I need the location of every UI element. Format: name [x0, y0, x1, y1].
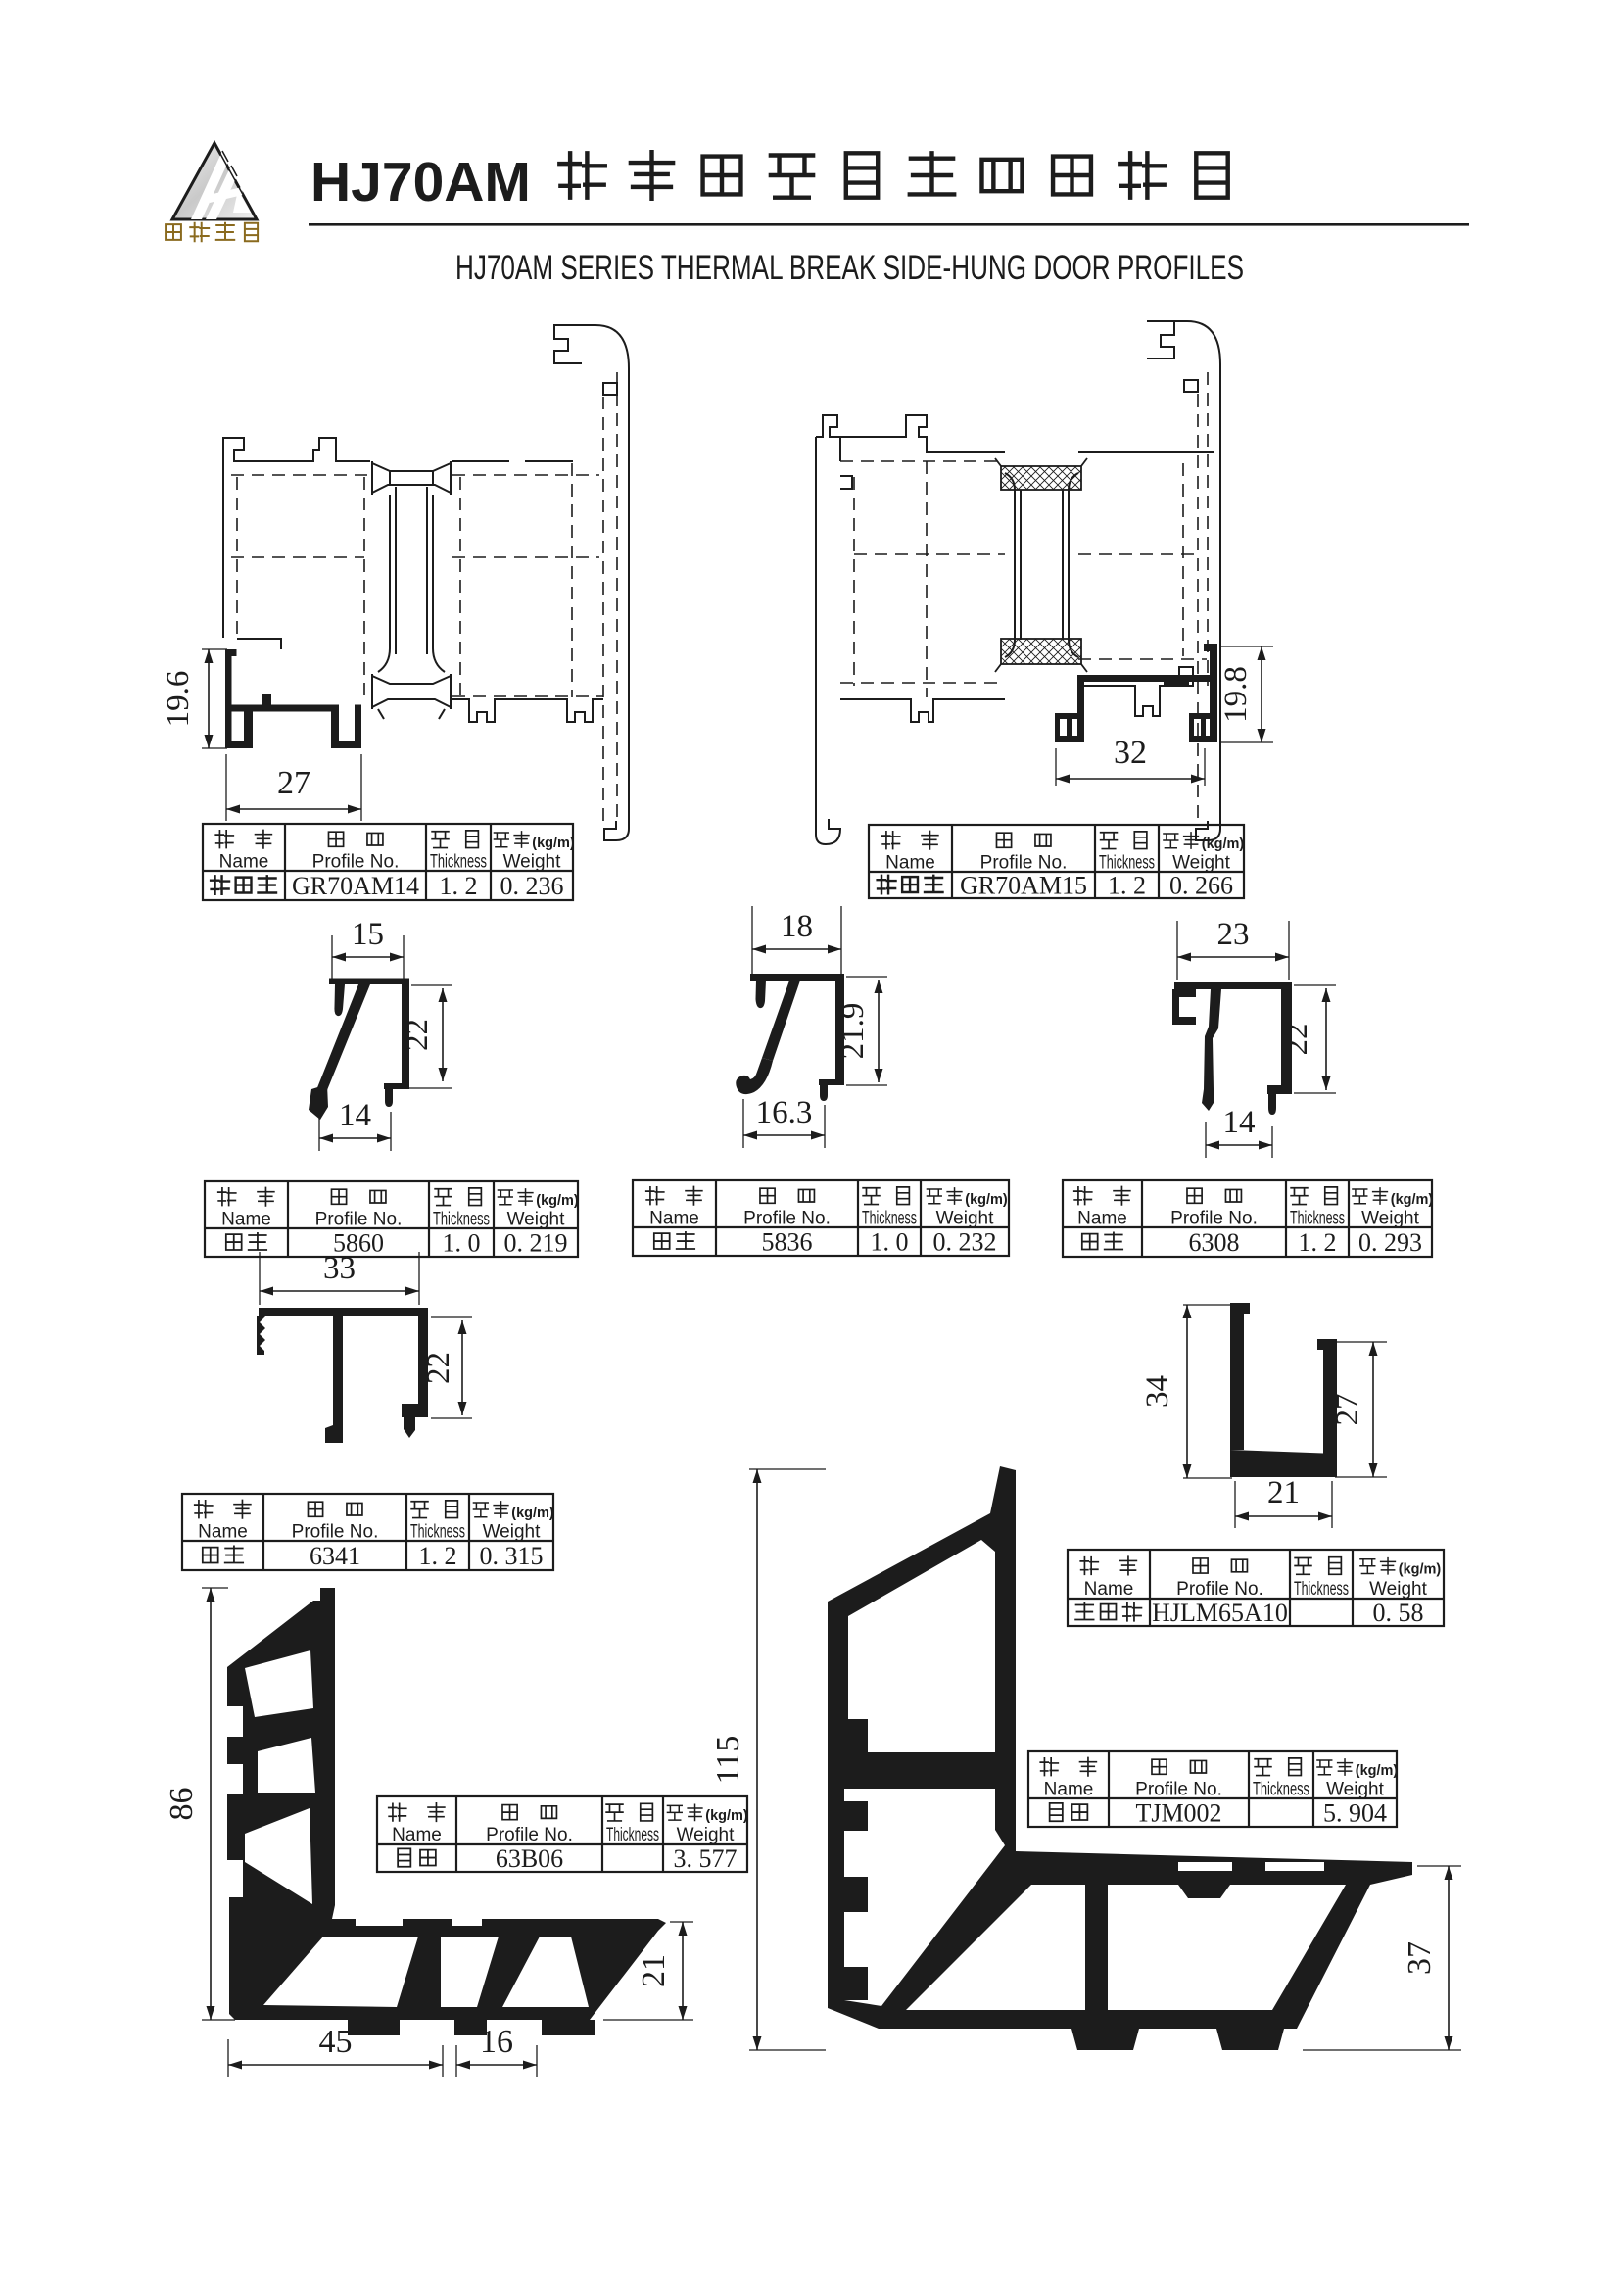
svg-text:Weight: Weight — [483, 1521, 542, 1542]
svg-text:(kg/m): (kg/m) — [1202, 837, 1245, 852]
svg-text:115: 115 — [710, 1736, 746, 1785]
svg-text:TJM002: TJM002 — [1135, 1799, 1221, 1828]
svg-text:Thickness: Thickness — [430, 851, 487, 872]
svg-text:14: 14 — [339, 1098, 371, 1133]
svg-text:5836: 5836 — [762, 1228, 813, 1257]
svg-text:Thickness: Thickness — [433, 1209, 490, 1229]
svg-text:18: 18 — [781, 909, 813, 944]
svg-text:0. 266: 0. 266 — [1169, 872, 1233, 900]
svg-text:1. 2: 1. 2 — [1299, 1228, 1337, 1257]
svg-text:0. 232: 0. 232 — [933, 1228, 997, 1257]
svg-text:(kg/m): (kg/m) — [511, 1506, 554, 1521]
svg-text:Thickness: Thickness — [1294, 1579, 1349, 1600]
svg-text:27: 27 — [277, 765, 310, 801]
svg-text:63B06: 63B06 — [496, 1844, 563, 1873]
svg-text:15: 15 — [352, 917, 384, 952]
svg-text:21.9: 21.9 — [835, 1003, 871, 1060]
svg-text:33: 33 — [323, 1251, 356, 1286]
svg-text:6308: 6308 — [1189, 1228, 1240, 1257]
svg-text:19.8: 19.8 — [1218, 666, 1254, 723]
svg-text:16.3: 16.3 — [756, 1095, 813, 1130]
svg-text:1. 2: 1. 2 — [440, 872, 478, 900]
svg-text:22: 22 — [1279, 1024, 1314, 1056]
svg-text:Name: Name — [392, 1825, 442, 1845]
svg-text:6341: 6341 — [310, 1542, 360, 1570]
svg-text:(kg/m): (kg/m) — [1391, 1192, 1434, 1208]
svg-text:GR70AM14: GR70AM14 — [292, 872, 419, 900]
svg-text:Profile No.: Profile No. — [980, 852, 1068, 873]
svg-text:0. 236: 0. 236 — [500, 872, 564, 900]
svg-text:(kg/m): (kg/m) — [1399, 1562, 1442, 1578]
svg-text:Weight: Weight — [677, 1825, 736, 1845]
svg-text:0. 58: 0. 58 — [1373, 1599, 1424, 1627]
svg-text:Weight: Weight — [503, 851, 562, 872]
svg-text:(kg/m): (kg/m) — [705, 1808, 748, 1824]
svg-text:Weight: Weight — [1326, 1779, 1385, 1799]
svg-text:45: 45 — [319, 2024, 353, 2060]
svg-text:86: 86 — [164, 1788, 200, 1821]
svg-text:5. 904: 5. 904 — [1323, 1799, 1387, 1828]
svg-text:Profile No.: Profile No. — [292, 1521, 379, 1542]
svg-text:GR70AM15: GR70AM15 — [960, 872, 1087, 900]
svg-text:22: 22 — [421, 1352, 456, 1384]
svg-text:Name: Name — [1044, 1779, 1094, 1799]
svg-text:(kg/m): (kg/m) — [965, 1192, 1008, 1208]
svg-text:Weight: Weight — [1361, 1208, 1420, 1228]
svg-text:Name: Name — [649, 1208, 699, 1228]
svg-text:37: 37 — [1402, 1941, 1438, 1975]
svg-text:(kg/m): (kg/m) — [536, 1193, 579, 1209]
svg-text:14: 14 — [1223, 1105, 1256, 1140]
svg-text:Thickness: Thickness — [1290, 1208, 1345, 1228]
svg-text:Profile No.: Profile No. — [1170, 1208, 1258, 1228]
svg-text:27: 27 — [1330, 1394, 1365, 1426]
svg-text:Profile No.: Profile No. — [1135, 1779, 1222, 1799]
svg-text:21: 21 — [636, 1954, 672, 1987]
svg-text:Thickness: Thickness — [410, 1521, 465, 1542]
svg-text:32: 32 — [1114, 735, 1147, 771]
svg-text:Profile No.: Profile No. — [486, 1825, 573, 1845]
svg-text:19.6: 19.6 — [161, 671, 196, 728]
svg-text:3. 577: 3. 577 — [674, 1844, 738, 1873]
svg-text:1. 2: 1. 2 — [1108, 872, 1146, 900]
svg-text:Name: Name — [219, 851, 269, 872]
svg-text:Weight: Weight — [507, 1209, 566, 1229]
svg-text:Profile No.: Profile No. — [315, 1209, 403, 1229]
svg-text:Weight: Weight — [936, 1208, 995, 1228]
svg-text:HJ70AM: HJ70AM — [310, 151, 531, 214]
svg-text:Weight: Weight — [1172, 852, 1231, 873]
svg-text:Name: Name — [221, 1209, 271, 1229]
svg-text:Name: Name — [1077, 1208, 1127, 1228]
svg-text:16: 16 — [480, 2024, 513, 2060]
svg-text:34: 34 — [1140, 1375, 1175, 1408]
svg-text:1. 0: 1. 0 — [443, 1229, 481, 1258]
svg-text:0. 219: 0. 219 — [504, 1229, 568, 1258]
svg-text:Name: Name — [198, 1521, 248, 1542]
svg-text:22: 22 — [400, 1019, 435, 1051]
svg-text:0. 293: 0. 293 — [1358, 1228, 1422, 1257]
svg-text:Weight: Weight — [1369, 1579, 1428, 1600]
svg-text:(kg/m): (kg/m) — [532, 836, 575, 851]
svg-text:21: 21 — [1267, 1475, 1300, 1510]
svg-text:Name: Name — [1084, 1579, 1134, 1600]
svg-text:Thickness: Thickness — [1099, 852, 1155, 873]
svg-text:1. 2: 1. 2 — [419, 1542, 457, 1570]
svg-text:(kg/m): (kg/m) — [1356, 1763, 1399, 1779]
svg-text:HJLM65A10: HJLM65A10 — [1152, 1599, 1288, 1627]
svg-text:Thickness: Thickness — [1253, 1779, 1309, 1799]
svg-text:1. 0: 1. 0 — [871, 1228, 909, 1257]
svg-text:HJ70AM SERIES THERMAL BREAK S: HJ70AM SERIES THERMAL BREAK SIDE-HUNG DO… — [455, 248, 1244, 287]
svg-text:Thickness: Thickness — [862, 1208, 917, 1228]
svg-text:Thickness: Thickness — [606, 1825, 659, 1845]
svg-text:Profile No.: Profile No. — [1176, 1579, 1263, 1600]
svg-text:0. 315: 0. 315 — [480, 1542, 544, 1570]
svg-text:23: 23 — [1217, 917, 1250, 952]
svg-text:Name: Name — [885, 852, 935, 873]
svg-text:Profile No.: Profile No. — [312, 851, 400, 872]
svg-text:Profile No.: Profile No. — [743, 1208, 831, 1228]
